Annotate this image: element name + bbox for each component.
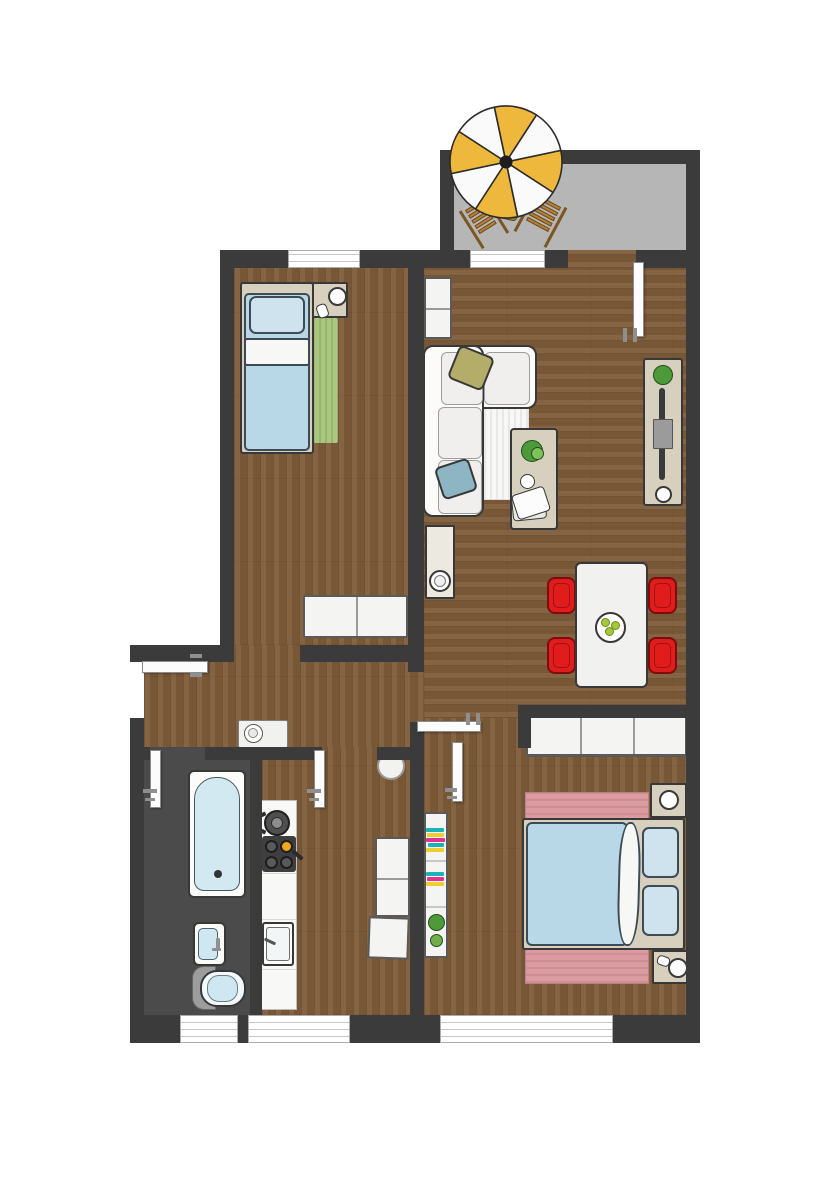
book [427, 833, 444, 837]
balcony-right-wall [686, 150, 700, 250]
cabinet-divider [377, 878, 408, 880]
bedroom2-door-handle [476, 713, 480, 725]
parasol-icon [448, 104, 564, 220]
cabinet-divider [356, 597, 358, 636]
hall-console-bowl-inner [248, 728, 258, 738]
book [426, 848, 444, 852]
entrance-door-handle [190, 673, 202, 677]
double-bed-pillow [642, 827, 679, 878]
living-wall-cabinet [424, 277, 452, 339]
left-wall-upper [220, 250, 234, 662]
book [426, 838, 445, 842]
sideboard-divider [580, 715, 582, 754]
dining-chair [648, 577, 677, 614]
bathroom-door-handle [145, 798, 155, 801]
right-wall [686, 250, 700, 1043]
book [426, 882, 444, 886]
shelf-divider [426, 906, 446, 908]
sofa-cushion [438, 407, 482, 459]
kitchen-door-handle [309, 798, 319, 801]
book [426, 872, 444, 876]
bath-kitchen-wall [250, 747, 262, 1015]
balcony-door-handle [623, 328, 627, 342]
bedroom1-bottom-wall [300, 645, 424, 662]
bathroom-door-handle [143, 789, 157, 793]
book [427, 877, 444, 881]
bedroom2-jamb-handle [447, 796, 457, 799]
bedroom1-table-lamp [328, 287, 347, 306]
floor-plan [0, 0, 833, 1200]
top-wall [360, 250, 471, 268]
top-wall [545, 250, 568, 268]
apple [605, 627, 614, 636]
cabinet-divider [426, 308, 450, 310]
burner [265, 856, 278, 869]
cooking-pot-lid [271, 817, 283, 829]
bedroom1-cabinet [303, 595, 408, 638]
toilet-bowl-inner [207, 975, 238, 1002]
apple [601, 618, 610, 627]
left-wall-lower [130, 718, 144, 1043]
counter-seam [262, 919, 296, 920]
entrance-door-leaf [142, 661, 208, 673]
living-room-window [470, 250, 545, 268]
bathtub-drain [214, 870, 222, 878]
bedroom2-table-lamp [668, 958, 688, 978]
coffee-table-candle [520, 474, 535, 489]
shelf-plant [430, 934, 443, 947]
dining-chair [648, 637, 677, 674]
kitchen-top-wall [262, 747, 322, 760]
bedroom2-door-jamb [452, 742, 463, 802]
dining-chair [547, 577, 576, 614]
dining-chair [547, 637, 576, 674]
console-bowl-inner [434, 575, 446, 587]
kitchen-sink-basin [266, 927, 290, 961]
kitchen-door-handle [307, 789, 321, 793]
counter-seam [262, 873, 296, 874]
washbasin-bowl [198, 928, 218, 960]
bathroom-window [180, 1015, 238, 1043]
book [428, 843, 444, 847]
double-bed-duvet [526, 822, 628, 946]
bedroom2-jamb-handle [445, 788, 457, 792]
bedroom2-table-lamp [659, 790, 679, 810]
bedroom2-top-wall [518, 705, 700, 718]
tv-board-plant [653, 365, 673, 385]
corridor-wall [410, 722, 424, 1015]
balcony-door-leaf [633, 262, 644, 337]
kitchen-window [248, 1015, 350, 1043]
burner [280, 856, 293, 869]
book [426, 828, 444, 832]
double-bed-pillow [642, 885, 679, 936]
balcony-door-handle [633, 328, 637, 342]
bedroom2-sideboard [526, 713, 687, 757]
counter-seam [262, 969, 296, 970]
tv-board-speaker [655, 486, 672, 503]
sideboard-divider [633, 715, 635, 754]
tv-mount-box [653, 419, 673, 449]
burner [265, 840, 278, 853]
bedroom2-stub-wall [518, 705, 531, 748]
parasol-hub [500, 156, 513, 169]
balcony-door-threshold [567, 250, 638, 268]
basin-faucet-spout [212, 948, 221, 951]
bedroom2-window [440, 1015, 613, 1043]
kitchen-tall-cabinet [375, 837, 410, 917]
entrance-door-handle [190, 654, 202, 658]
bedroom2-door-handle [466, 713, 470, 725]
coffee-table-plant-leaf [531, 447, 544, 460]
single-bed-pillow [249, 296, 305, 334]
single-bed-sheet-fold [244, 338, 310, 366]
shelf-divider [426, 860, 446, 862]
kitchen-lower-cabinet [367, 916, 409, 959]
bedroom2-door-leaf [417, 721, 481, 732]
bedroom1-window [288, 250, 360, 268]
green-rug [313, 318, 338, 443]
bedroom1-right-wall [408, 268, 424, 672]
shelf-plant [428, 914, 445, 931]
step-wall [130, 645, 234, 662]
kitchen-stub-wall [377, 747, 410, 760]
